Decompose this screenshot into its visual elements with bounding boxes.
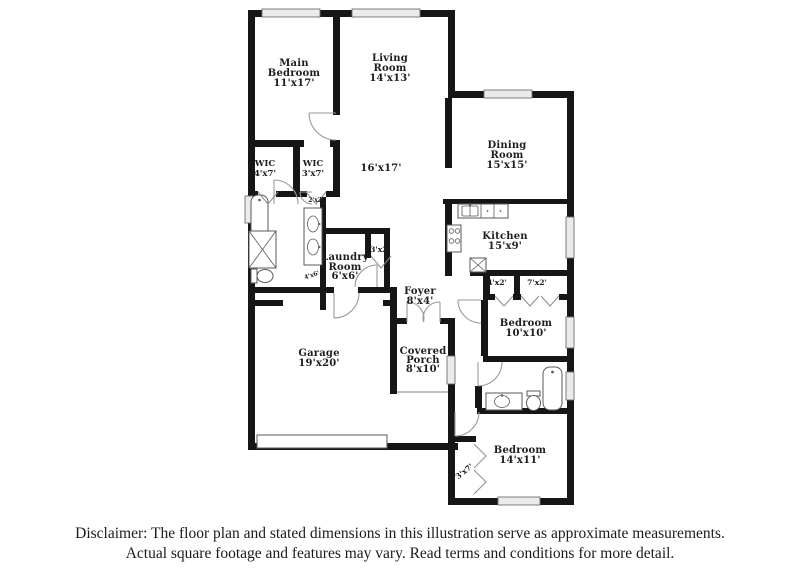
faucet-icon [319,246,321,248]
room-label-wic-left: WIC [254,159,276,169]
wall [448,408,455,414]
door-arc [458,300,481,323]
wall [513,294,521,300]
faucet-icon [469,203,472,206]
counter-knob [500,210,502,212]
bifold-door [474,444,486,468]
toilet-icon [527,396,541,411]
window [498,497,540,505]
door-arc [478,362,502,386]
bifold-door [474,470,486,494]
wall [326,228,390,234]
wall [567,96,574,498]
wall [559,294,567,300]
door-arc [309,113,336,140]
room-dims-great-room: 16'x17' [360,163,401,174]
wall [326,191,340,197]
window [352,9,420,17]
wall [326,287,334,293]
room-dims-dining-room: 15'x15' [486,160,527,171]
toilet-tank-icon [251,269,257,283]
closet-label-laundry: 3'x2' [370,245,390,254]
wall [293,140,300,197]
faucet-icon [501,394,503,396]
wall [490,270,567,276]
faucet-icon [258,199,261,202]
wall [248,300,283,306]
faucet-icon [551,371,554,374]
wall [276,191,294,197]
wall [333,140,340,197]
wall [445,270,452,276]
room-labels: Main Bedroom 11'x17' Living Room 14'x13'… [254,53,553,481]
window [262,9,320,17]
garage-door-icon [257,435,387,448]
room-dims-kitchen: 15'x9' [488,241,522,252]
wall [448,10,455,98]
closet-label-bedroom2-large: 7'x2' [527,278,547,287]
disclaimer-line-1: Disclaimer: The floor plan and stated di… [0,524,800,544]
room-dims-bedroom-3: 14'x11' [499,455,540,466]
bifold-door [521,296,539,306]
closet-label-vanity: 2'x2' [308,197,324,204]
counter-knob [487,210,489,212]
wall [448,436,476,442]
floor-plan: Main Bedroom 11'x17' Living Room 14'x13'… [0,0,800,582]
disclaimer: Disclaimer: The floor plan and stated di… [0,524,800,564]
toilet-icon [257,270,273,283]
faucet-icon [319,223,321,225]
closet-label-bedroom3: 3'x7' [454,462,475,481]
wall [443,199,574,204]
room-dims-covered-porch: 8'x10' [406,364,440,375]
floor-plan-page: Main Bedroom 11'x17' Living Room 14'x13'… [0,0,800,582]
bifold-door [495,296,513,306]
bifold-door [541,296,559,306]
wall [481,300,488,356]
wall [333,10,340,115]
wall [383,300,397,306]
window [447,356,455,384]
room-dims-wic-right: 3'x7' [302,169,324,179]
bathtub-icon [543,367,562,410]
wall [248,287,324,293]
room-dims-wic-left: 4'x7' [254,169,276,179]
room-dims-laundry: 6'x6' [331,271,358,282]
disclaimer-line-2: Actual square footage and features may v… [0,544,800,564]
label-hall-nook: 4'x6' [303,270,320,282]
wall [475,386,482,408]
window [566,317,574,348]
window [566,217,574,258]
wall [483,294,495,300]
door-arc [455,412,479,436]
door-arc [334,293,359,318]
wall [440,318,455,324]
room-dims-bedroom-2: 10'x10' [505,328,546,339]
vanity-counter-icon [304,208,322,265]
wall [445,98,452,168]
room-dims-main-bedroom: 11'x17' [273,78,314,89]
room-dims-living-room: 14'x13' [369,73,410,84]
window [484,90,532,98]
wall [483,356,567,362]
room-dims-foyer: 8'x4' [406,296,433,307]
window [566,372,574,400]
closet-label-bedroom2-small: 4'x2' [487,278,507,287]
room-label-wic-right: WIC [302,159,324,169]
wall [390,318,407,324]
room-dims-garage: 19'x20' [298,358,339,369]
